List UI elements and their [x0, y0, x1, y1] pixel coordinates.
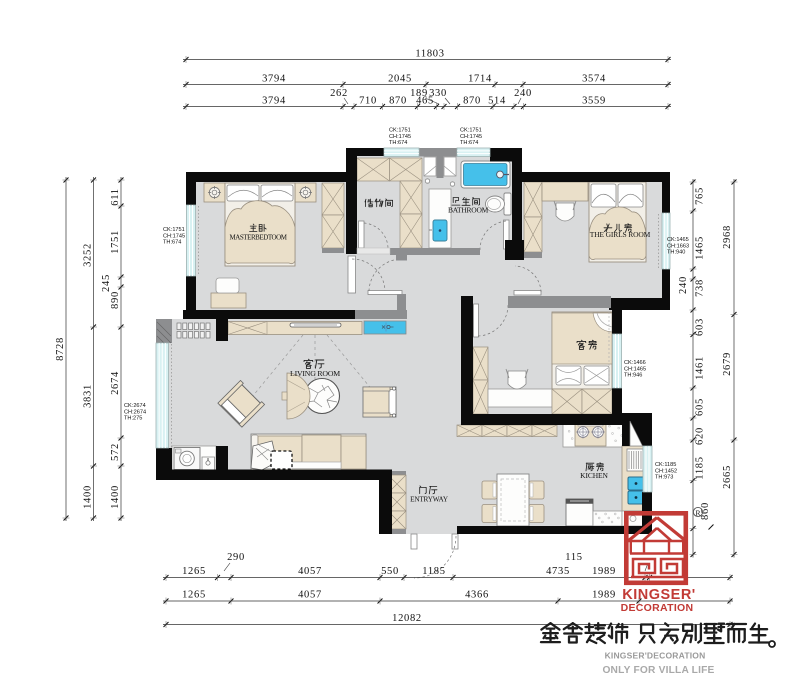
svg-text:BATHROOM: BATHROOM [448, 206, 489, 215]
svg-text:KINGSER': KINGSER' [622, 587, 696, 603]
svg-text:860: 860 [700, 502, 711, 520]
svg-text:1265: 1265 [182, 566, 206, 577]
svg-text:CH:1663: CH:1663 [667, 243, 689, 249]
svg-text:1989: 1989 [592, 566, 616, 577]
svg-text:TH:940: TH:940 [667, 250, 685, 256]
svg-text:3559: 3559 [582, 95, 606, 106]
svg-text:765: 765 [695, 187, 706, 205]
svg-text:710: 710 [359, 95, 377, 106]
svg-text:CH:1452: CH:1452 [655, 468, 677, 474]
svg-text:MASTERBEDTOOM: MASTERBEDTOOM [229, 234, 287, 242]
svg-text:330: 330 [429, 88, 447, 99]
svg-text:CH:1745: CH:1745 [460, 134, 482, 140]
svg-text:1714: 1714 [468, 73, 492, 84]
svg-text:890: 890 [110, 291, 121, 309]
svg-text:1461: 1461 [695, 356, 706, 380]
svg-text:572: 572 [110, 443, 121, 461]
svg-text:240: 240 [678, 276, 689, 294]
svg-text:THE GIRLS ROOM: THE GIRLS ROOM [590, 230, 651, 239]
svg-text:CK:1751: CK:1751 [389, 128, 411, 134]
svg-text:4057: 4057 [298, 590, 322, 601]
svg-text:245: 245 [101, 274, 112, 292]
svg-text:3574: 3574 [582, 73, 606, 84]
svg-text:2045: 2045 [388, 73, 412, 84]
svg-text:CH:1745: CH:1745 [163, 233, 185, 239]
svg-text:CH:1465: CH:1465 [624, 366, 646, 372]
svg-text:514: 514 [488, 95, 506, 106]
svg-text:262: 262 [330, 88, 348, 99]
svg-text:3831: 3831 [82, 384, 93, 408]
svg-text:1751: 1751 [110, 230, 121, 254]
svg-text:CK:1185: CK:1185 [655, 462, 676, 468]
svg-text:CK:1751: CK:1751 [460, 128, 482, 134]
svg-text:TH:674: TH:674 [460, 140, 478, 146]
svg-text:3252: 3252 [82, 243, 93, 267]
svg-text:240: 240 [514, 88, 532, 99]
svg-text:620: 620 [695, 427, 706, 445]
svg-text:189: 189 [410, 88, 428, 99]
svg-text:KICHEN: KICHEN [580, 471, 608, 480]
svg-text:2968: 2968 [722, 225, 733, 249]
svg-text:11803: 11803 [415, 48, 444, 59]
svg-text:611: 611 [110, 188, 121, 205]
svg-text:1185: 1185 [422, 566, 445, 577]
svg-text:1265: 1265 [182, 590, 206, 601]
svg-text:115: 115 [565, 552, 582, 563]
svg-text:290: 290 [227, 552, 245, 563]
svg-text:2674: 2674 [110, 371, 121, 395]
svg-text:TH:973: TH:973 [655, 475, 673, 481]
svg-text:4735: 4735 [546, 566, 570, 577]
svg-text:CK:1466: CK:1466 [624, 360, 646, 366]
svg-text:ENTRYWAY: ENTRYWAY [410, 496, 449, 504]
svg-text:TH:275: TH:275 [124, 416, 142, 422]
svg-text:CK:2674: CK:2674 [124, 403, 146, 409]
svg-text:4057: 4057 [298, 566, 322, 577]
svg-text:1400: 1400 [82, 485, 93, 509]
svg-text:R: R [695, 509, 700, 518]
svg-text:CK:1751: CK:1751 [163, 227, 185, 233]
svg-text:1465: 1465 [695, 236, 706, 260]
svg-text:1400: 1400 [110, 485, 121, 509]
svg-text:1185: 1185 [695, 456, 706, 479]
svg-text:1989: 1989 [592, 590, 616, 601]
svg-text:CH:2674: CH:2674 [124, 409, 146, 415]
svg-text:8728: 8728 [55, 337, 66, 361]
svg-text:2679: 2679 [722, 352, 733, 376]
svg-text:550: 550 [381, 566, 399, 577]
svg-text:DECORATION: DECORATION [621, 602, 694, 614]
svg-text:3794: 3794 [262, 73, 286, 84]
svg-text:ONLY FOR VILLA LIFE: ONLY FOR VILLA LIFE [602, 665, 714, 676]
svg-text:605: 605 [695, 398, 706, 416]
svg-text:KINGSER'DECORATION: KINGSER'DECORATION [605, 651, 706, 661]
svg-text:LIVING ROOM: LIVING ROOM [290, 369, 340, 378]
svg-text:870: 870 [389, 95, 407, 106]
svg-text:870: 870 [463, 95, 481, 106]
svg-text:738: 738 [695, 279, 706, 297]
svg-text:TH:674: TH:674 [163, 240, 181, 246]
svg-text:CK:1465: CK:1465 [667, 237, 689, 243]
svg-text:603: 603 [695, 318, 706, 336]
svg-text:3794: 3794 [262, 95, 286, 106]
svg-text:2665: 2665 [722, 465, 733, 489]
svg-text:TH:946: TH:946 [624, 373, 642, 379]
svg-text:12082: 12082 [392, 613, 422, 624]
svg-text:TH:674: TH:674 [389, 140, 407, 146]
svg-text:CH:1745: CH:1745 [389, 134, 411, 140]
svg-text:4366: 4366 [465, 590, 489, 601]
